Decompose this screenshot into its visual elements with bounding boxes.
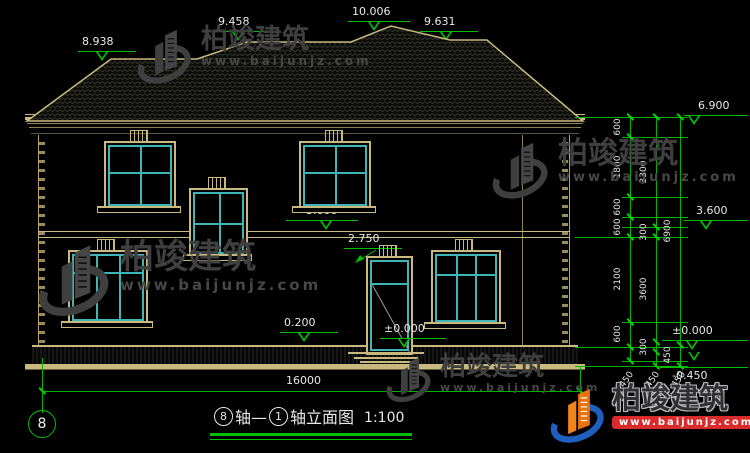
axis-bubble-8: 8 xyxy=(28,410,56,438)
dim-value: 600 xyxy=(613,325,623,342)
footer-logo-icon xyxy=(550,384,608,448)
dim-value: 600 xyxy=(613,118,623,135)
level-triangle-icon xyxy=(700,221,712,230)
window-keystone xyxy=(455,239,473,252)
elevation-drawing-canvas: 8.938 9.458 10.006 9.631 6.900 3.600 2.7… xyxy=(0,0,750,453)
level-triangle-icon xyxy=(320,221,332,230)
width-dim-value: 16000 xyxy=(286,374,321,387)
watermark-url: www.baijunjz.com xyxy=(201,54,372,68)
title-text: 轴— xyxy=(235,404,267,428)
drawing-scale: 1:100 xyxy=(364,406,404,426)
window-keystone xyxy=(325,130,343,143)
watermark-brand: 柏竣建筑 xyxy=(201,26,372,54)
footer-brand: 柏竣建筑 xyxy=(612,384,750,413)
axis-number: 8 xyxy=(38,416,47,432)
marker-value: 2.750 xyxy=(348,233,380,245)
marker-value: ±0.000 xyxy=(384,323,425,335)
window-sash xyxy=(303,145,367,206)
watermark-brand: 柏竣建筑 xyxy=(120,240,321,276)
watermark-logo-icon xyxy=(386,354,434,406)
window-keystone xyxy=(208,177,226,190)
watermark-logo-icon xyxy=(137,26,195,88)
level-triangle-icon xyxy=(686,341,698,350)
dim-value: 3600 xyxy=(639,278,649,301)
door-keystone xyxy=(379,245,397,258)
window-sash xyxy=(435,254,497,322)
watermark-logo-icon xyxy=(38,240,114,322)
watermark-left: 柏竣建筑 www.baijunjz.com xyxy=(38,240,321,322)
axis-circle-1: 1 xyxy=(269,407,288,426)
roof-outline xyxy=(0,0,750,145)
footer-logo: 柏竣建筑 www.baijunjz.com xyxy=(550,384,750,448)
window-sill xyxy=(424,322,506,329)
window-2f-right xyxy=(299,141,371,210)
axis-circle-8: 8 xyxy=(214,407,233,426)
window-sash xyxy=(108,145,172,206)
marker-value: ±0.000 xyxy=(672,325,713,337)
window-1f-right xyxy=(431,250,501,326)
window-sill xyxy=(61,321,153,328)
watermark-top: 柏竣建筑 www.baijunjz.com xyxy=(137,26,372,88)
watermark-logo-icon xyxy=(492,138,552,204)
watermark-right: 柏竣建筑 www.baijunjz.com xyxy=(492,138,739,204)
dim-value: 300 xyxy=(639,223,649,240)
watermark-brand: 柏竣建筑 xyxy=(558,138,739,170)
level-triangle-icon xyxy=(688,352,700,361)
title-text: 轴立面图 xyxy=(290,404,354,428)
watermark-url: www.baijunjz.com xyxy=(558,170,739,185)
dim-value: 450 xyxy=(663,346,673,363)
window-2f-left xyxy=(104,141,176,210)
footer-url: www.baijunjz.com xyxy=(612,416,750,429)
dim-value: 6900 xyxy=(663,220,673,243)
level-triangle-icon xyxy=(298,333,310,342)
window-keystone xyxy=(130,130,148,143)
level-triangle-icon xyxy=(398,339,410,348)
drawing-title: 8 轴— 1 轴立面图 1:100 xyxy=(212,404,404,428)
marker-value: 3.600 xyxy=(696,205,728,217)
dim-value: 2100 xyxy=(613,268,623,291)
dim-value: 600 xyxy=(613,218,623,235)
watermark-url: www.baijunjz.com xyxy=(120,276,321,294)
watermark-brand: 柏竣建筑 xyxy=(440,354,600,381)
dim-value: 300 xyxy=(639,338,649,355)
window-sill xyxy=(292,206,376,213)
window-sill xyxy=(97,206,181,213)
